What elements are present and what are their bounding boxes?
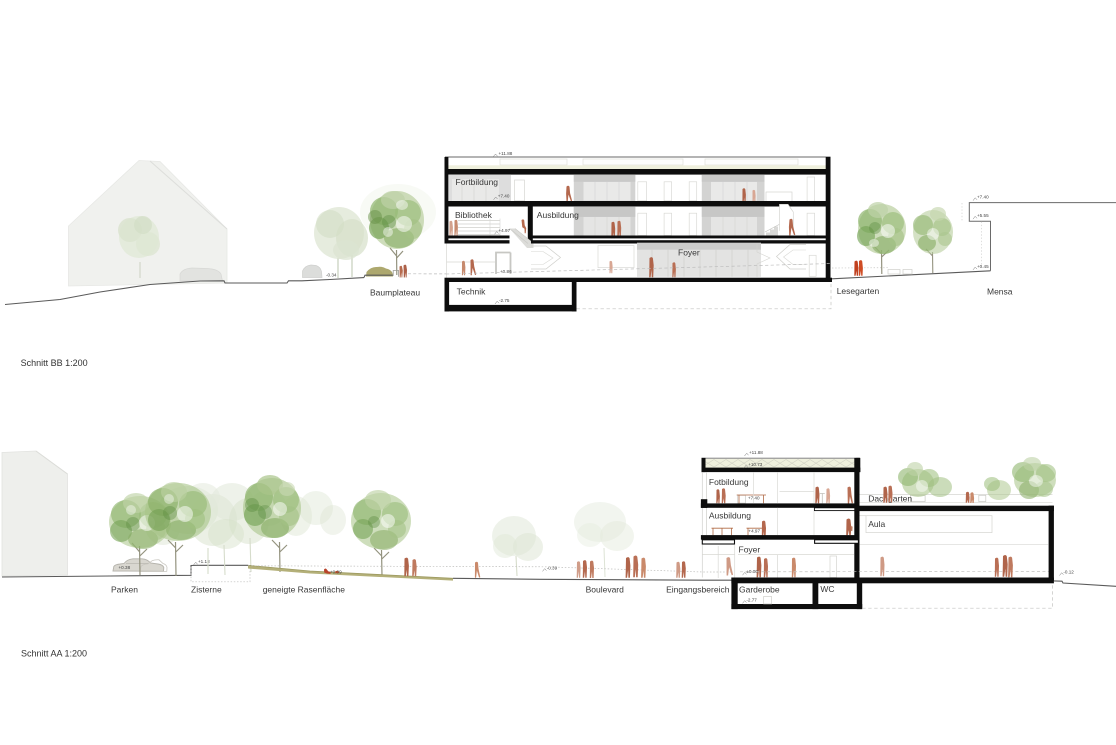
svg-text:Zisterne: Zisterne [191, 584, 222, 594]
svg-text:Garderobe: Garderobe [739, 584, 780, 594]
svg-text:Eingangsbereich: Eingangsbereich [666, 584, 730, 594]
svg-text:WC: WC [820, 584, 834, 594]
svg-text:Fotbildung: Fotbildung [709, 477, 749, 487]
svg-text:+4.97: +4.97 [499, 228, 511, 233]
svg-text:+11.88: +11.88 [499, 151, 513, 156]
svg-text:+11.88: +11.88 [749, 450, 763, 455]
svg-text:Schnitt BB 1:200: Schnitt BB 1:200 [21, 358, 88, 368]
svg-text:+0.86: +0.86 [500, 269, 512, 274]
svg-text:+0.09: +0.09 [330, 570, 342, 575]
svg-text:+0.38: +0.38 [119, 565, 131, 570]
svg-text:+10.73: +10.73 [748, 462, 763, 467]
svg-text:-2.75: -2.75 [499, 298, 510, 303]
svg-text:Foyer: Foyer [739, 544, 761, 554]
svg-text:Parken: Parken [111, 584, 138, 594]
svg-text:Ausbildung: Ausbildung [709, 510, 751, 520]
svg-text:+7.40: +7.40 [977, 195, 989, 200]
svg-text:Technik: Technik [457, 287, 487, 297]
svg-text:Foyer: Foyer [678, 247, 700, 257]
svg-text:Ausbildung: Ausbildung [537, 210, 579, 220]
svg-text:+7.40: +7.40 [498, 194, 510, 199]
svg-text:-0.34: -0.34 [326, 272, 337, 277]
svg-text:+4.97: +4.97 [748, 529, 760, 534]
svg-text:-0.39: -0.39 [547, 565, 558, 570]
svg-text:-0.12: -0.12 [1063, 569, 1074, 574]
svg-text:Bibliothek: Bibliothek [455, 210, 493, 220]
svg-text:geneigte Rasenfläche: geneigte Rasenfläche [263, 584, 346, 594]
svg-text:Schnitt AA 1:200: Schnitt AA 1:200 [21, 649, 87, 659]
svg-text:+5.55: +5.55 [977, 213, 989, 218]
svg-text:Aula: Aula [868, 519, 885, 529]
svg-text:Mensa: Mensa [987, 287, 1013, 297]
svg-text:Lesegarten: Lesegarten [837, 286, 880, 296]
svg-text:Fortbildung: Fortbildung [456, 177, 499, 187]
svg-text:-2.77: -2.77 [746, 597, 757, 602]
svg-text:+7.40: +7.40 [748, 495, 760, 500]
svg-text:Baumplateau: Baumplateau [370, 288, 420, 298]
svg-text:Boulevard: Boulevard [586, 584, 625, 594]
svg-text:+0.45: +0.45 [977, 264, 989, 269]
